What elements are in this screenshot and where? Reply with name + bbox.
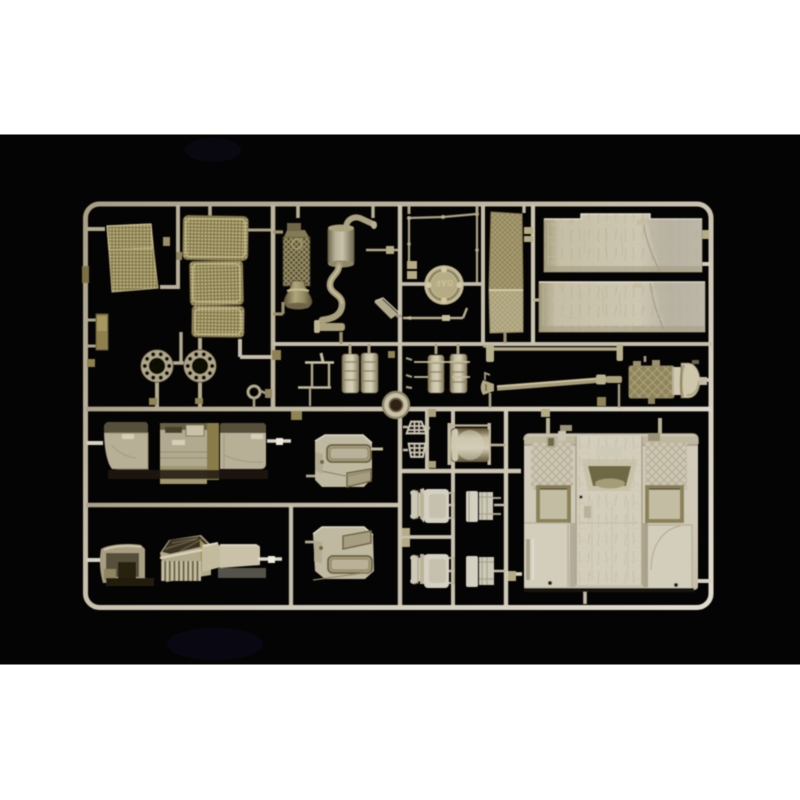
svg-text:DAF: DAF xyxy=(435,278,453,287)
